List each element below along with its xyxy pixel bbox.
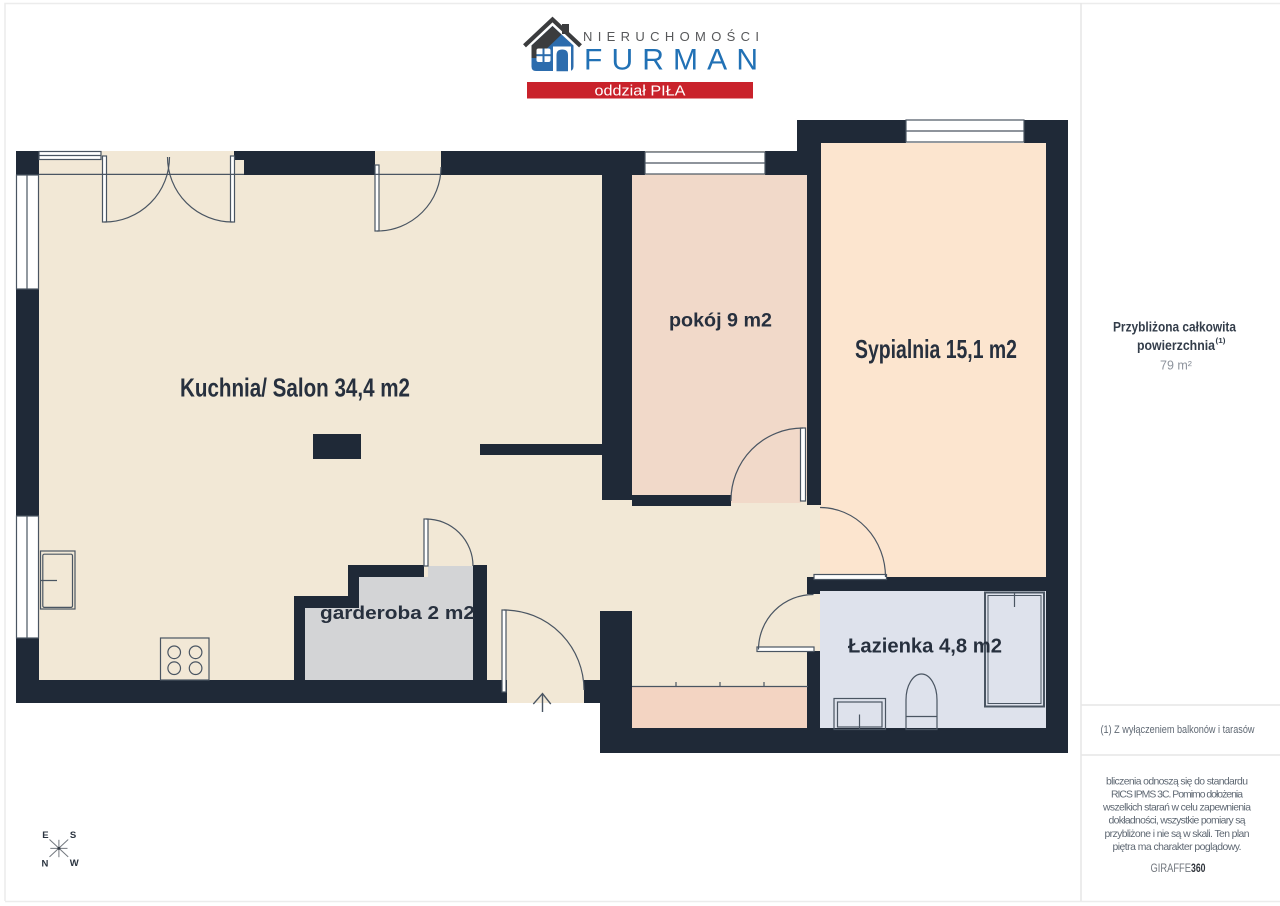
svg-text:wszelkich starań w celu zapewn: wszelkich starań w celu zapewnienia xyxy=(1102,803,1251,814)
svg-text:GIRAFFE: GIRAFFE xyxy=(1151,861,1192,875)
svg-text:powierzchnia: powierzchnia xyxy=(1137,338,1215,353)
svg-text:NIERUCHOMOŚCI: NIERUCHOMOŚCI xyxy=(583,29,759,44)
svg-text:piętra ma charakter poglądowy.: piętra ma charakter poglądowy. xyxy=(1113,842,1242,853)
svg-text:79 m²: 79 m² xyxy=(1160,359,1192,373)
svg-text:(1): (1) xyxy=(1216,336,1227,345)
svg-text:garderoba 2 m2: garderoba 2 m2 xyxy=(320,603,475,623)
svg-text:W: W xyxy=(70,858,79,869)
svg-text:przybliżone i nie są w skali.: przybliżone i nie są w skali. Ten plan xyxy=(1105,829,1250,840)
svg-text:E: E xyxy=(42,830,48,841)
svg-text:360: 360 xyxy=(1191,861,1206,875)
svg-text:Kuchnia/ Salon 34,4 m2: Kuchnia/ Salon 34,4 m2 xyxy=(180,373,410,403)
svg-text:Łazienka 4,8 m2: Łazienka 4,8 m2 xyxy=(848,636,1002,658)
svg-text:N: N xyxy=(41,858,48,869)
svg-text:Przybliżona całkowita: Przybliżona całkowita xyxy=(1113,320,1236,335)
svg-text:Sypialnia 15,1 m2: Sypialnia 15,1 m2 xyxy=(855,334,1017,364)
svg-text:S: S xyxy=(70,830,76,841)
svg-text:oddział PIŁA: oddział PIŁA xyxy=(595,84,686,100)
svg-text:(1) Z wyłączeniem balkonów i t: (1) Z wyłączeniem balkonów i tarasów xyxy=(1101,724,1255,736)
svg-text:bliczenia odnoszą się do stand: bliczenia odnoszą się do standardu xyxy=(1106,776,1248,787)
svg-text:dokładności, wszystkie pomiary: dokładności, wszystkie pomiary są xyxy=(1109,816,1246,827)
svg-text:RICS IPMS 3C. Pomimo dołożenia: RICS IPMS 3C. Pomimo dołożenia xyxy=(1111,789,1243,800)
svg-text:pokój 9 m2: pokój 9 m2 xyxy=(669,311,772,332)
